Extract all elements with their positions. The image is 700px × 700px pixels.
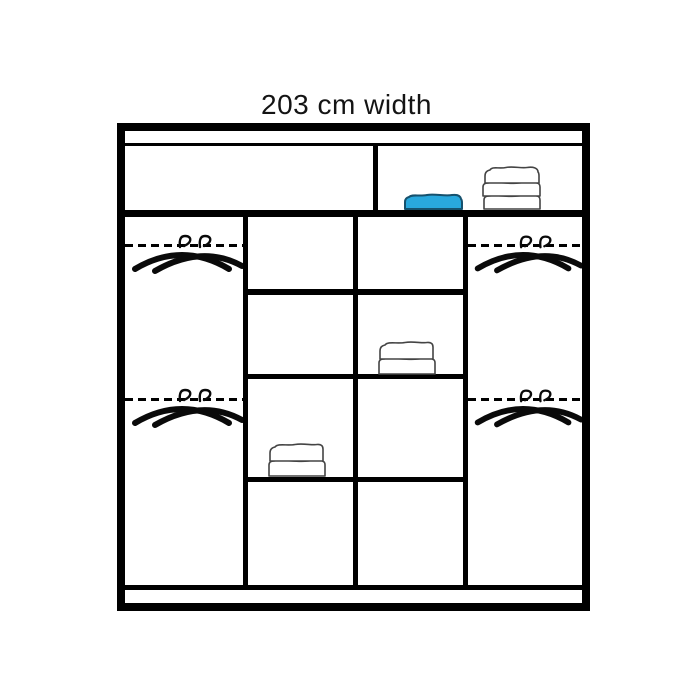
wardrobe-frame — [117, 123, 590, 611]
folded-towel-stack-2-icon — [265, 441, 329, 477]
width-dimension-label: 203 cm width — [110, 88, 583, 122]
shelf — [248, 374, 353, 379]
shelf — [248, 289, 353, 295]
folded-towel-stack-2-icon — [375, 339, 439, 375]
shelf — [248, 477, 353, 482]
double-hanger-icon — [125, 233, 243, 275]
bottom-panel-strip — [125, 590, 582, 603]
shelf — [358, 477, 463, 482]
top-panel-strip — [125, 131, 582, 143]
folded-towel-stack-3-icon — [480, 165, 544, 210]
wardrobe-interior — [125, 131, 582, 603]
top-shelf-right-compartment — [378, 146, 582, 210]
top-shelf-bottom-line — [125, 210, 582, 217]
double-hanger-icon — [468, 387, 582, 429]
shelf-column-2 — [358, 217, 463, 585]
hanging-column-right — [468, 217, 582, 585]
top-shelf-section — [125, 146, 582, 210]
shelf-column-1 — [248, 217, 353, 585]
top-shelf-left-compartment — [125, 146, 373, 210]
wardrobe-diagram: 203 cm width — [0, 0, 700, 700]
hanging-column-left — [125, 217, 243, 585]
double-hanger-icon — [125, 387, 243, 429]
shelf — [358, 289, 463, 295]
double-hanger-icon — [468, 233, 582, 275]
folded-towel-blue-icon — [403, 192, 465, 210]
wardrobe-body — [125, 217, 582, 585]
